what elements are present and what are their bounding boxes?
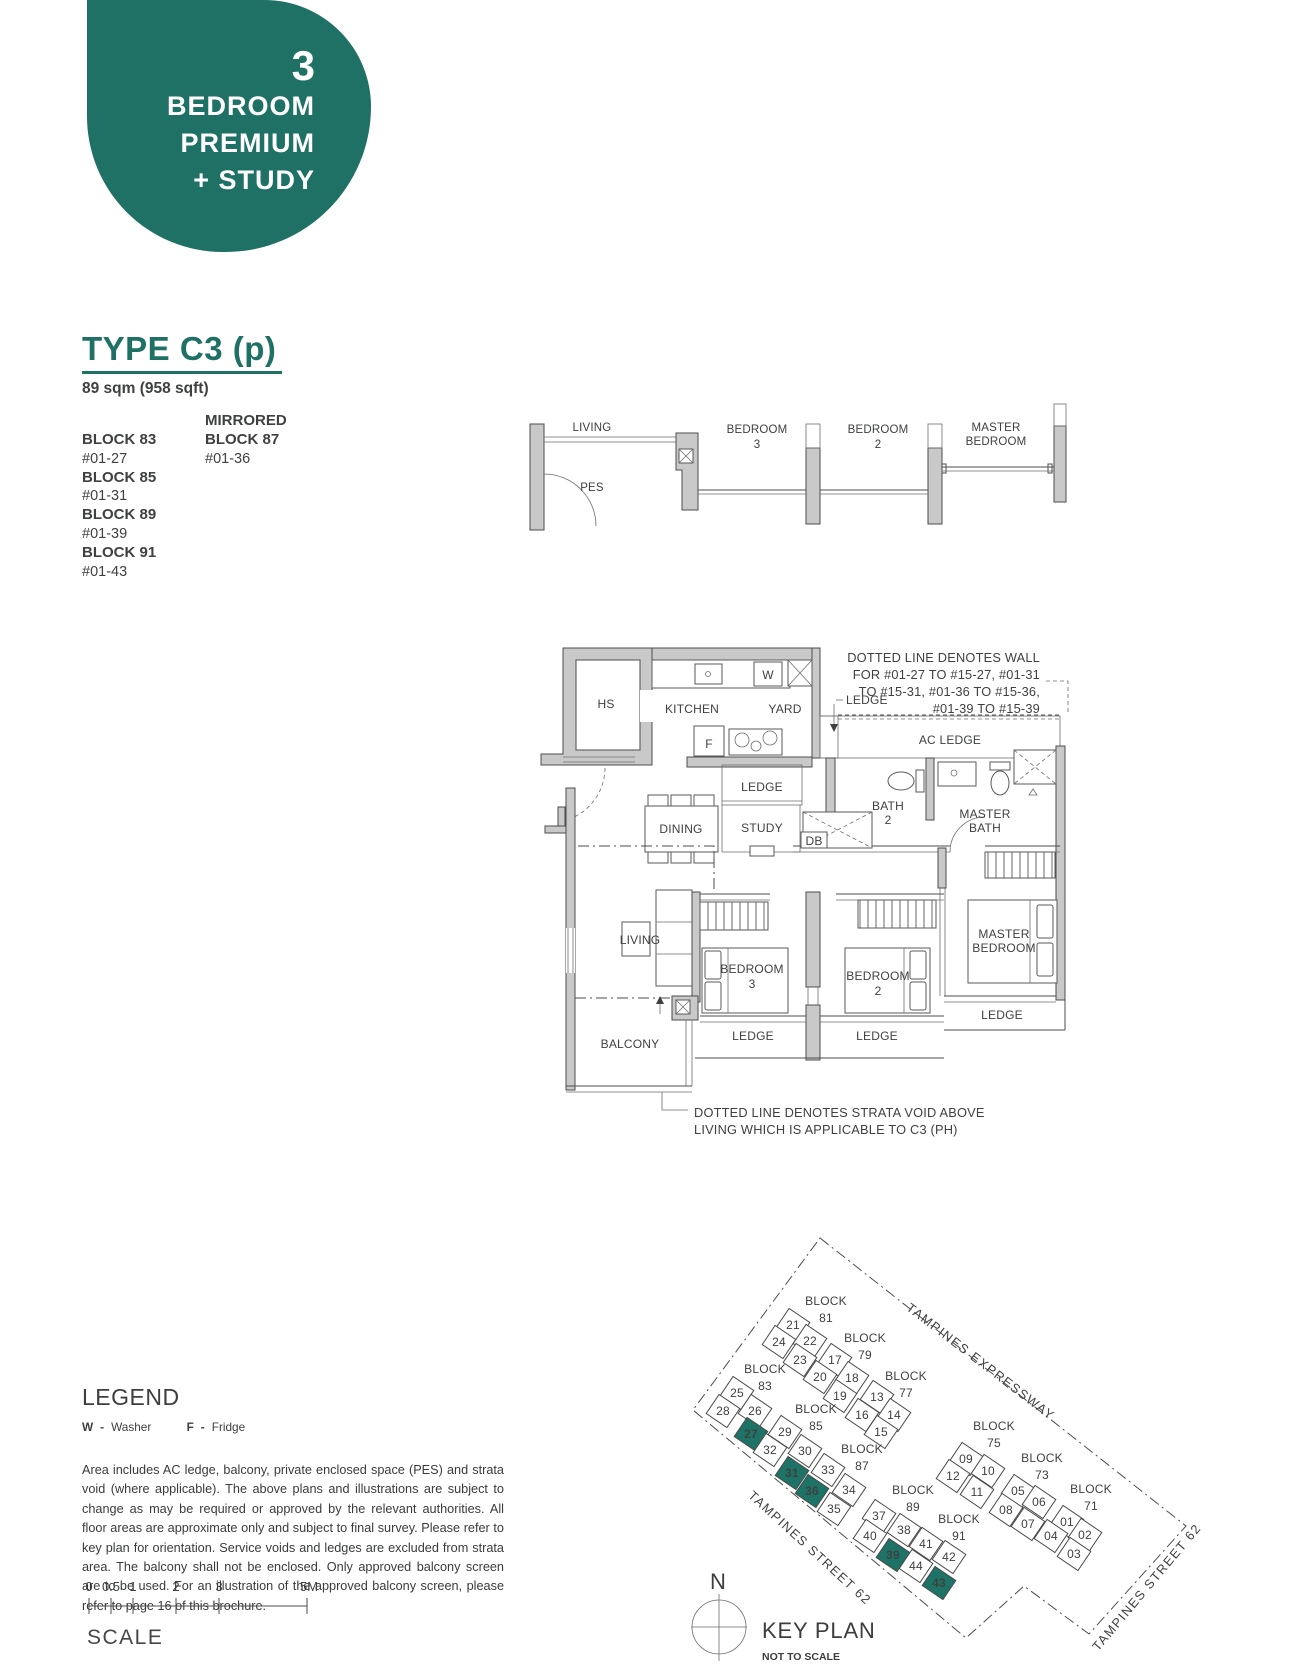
keyplan-unit-number: 24 <box>772 1335 786 1349</box>
scale-tick: 2 <box>172 1579 179 1594</box>
keyplan-unit-number: 40 <box>863 1529 877 1543</box>
keyplan-block-number: 85 <box>809 1419 823 1433</box>
keyplan-unit-number: 02 <box>1078 1528 1092 1542</box>
room-label-master-bath: MASTER <box>959 807 1010 821</box>
room-label-master-bedroom: MASTER <box>978 927 1029 941</box>
keyplan-block-label: BLOCK <box>892 1483 934 1497</box>
keyplan-unit-number: 11 <box>971 1485 984 1499</box>
keyplan-block-number: 79 <box>858 1348 872 1362</box>
keyplan-block-number: 71 <box>1084 1499 1098 1513</box>
wall-note-line: FOR #01-27 TO #15-27, #01-31 <box>853 667 1040 682</box>
keyplan-block-label: BLOCK <box>844 1331 886 1345</box>
keyplan-block-number: 91 <box>952 1529 966 1543</box>
keyplan-block-label: BLOCK <box>1021 1451 1063 1465</box>
room-label-bedroom3-num: 3 <box>749 977 756 991</box>
room-label-kitchen: KITCHEN <box>665 702 719 716</box>
room-label-pes: PES <box>580 482 604 494</box>
keyplan-unit-number: 06 <box>1032 1495 1046 1509</box>
room-label-living-upper: LIVING <box>573 422 612 434</box>
room-label-master-upper: MASTER <box>971 422 1020 434</box>
brochure-page: 3 BEDROOM PREMIUM + STUDY TYPE C3 (p) 89… <box>0 0 1305 1670</box>
room-label-bedroom3-upper: BEDROOM <box>727 424 788 436</box>
street-label-st62-left: TAMPINES STREET 62 <box>746 1488 875 1608</box>
keyplan-unit-number: 32 <box>763 1443 777 1457</box>
scale-tick: 3 <box>215 1579 222 1594</box>
keyplan-block-number: 81 <box>819 1311 833 1325</box>
room-label-bedroom2: BEDROOM <box>846 969 909 983</box>
room-label-ledge-master: LEDGE <box>981 1008 1023 1022</box>
keyplan-unit-number: 27 <box>744 1427 758 1441</box>
room-label-bath2-num: 2 <box>885 813 892 827</box>
upper-partial-plan: LIVING PES BEDROOM 3 BEDROOM 2 MASTER BE… <box>530 404 1066 530</box>
room-label-ledge-b3: LEDGE <box>732 1029 774 1043</box>
keyplan-unit-number: 37 <box>872 1509 886 1523</box>
keyplan-unit-number: 35 <box>827 1502 841 1516</box>
keyplan-block-label: BLOCK <box>795 1402 837 1416</box>
key-plan: TAMPINES EXPRESSWAY TAMPINES STREET 62 T… <box>691 1238 1204 1663</box>
keyplan-unit-number: 10 <box>981 1464 995 1478</box>
keyplan-unit-number: 36 <box>805 1484 819 1498</box>
room-label-hs: HS <box>597 697 614 711</box>
keyplan-unit-number: 05 <box>1011 1484 1025 1498</box>
room-label-balcony: BALCONY <box>601 1037 660 1051</box>
room-label-master-bedroom-2: BEDROOM <box>972 941 1035 955</box>
keyplan-unit-number: 33 <box>821 1463 835 1477</box>
keyplan-units: BLOCK8121242223BLOCK7917201819BLOCK77131… <box>706 1294 1112 1600</box>
keyplan-subtitle: NOT TO SCALE <box>762 1651 840 1663</box>
keyplan-unit-number: 18 <box>845 1371 859 1385</box>
keyplan-block-number: 87 <box>855 1459 869 1473</box>
room-label-bedroom3-upper-num: 3 <box>754 439 761 451</box>
keyplan-unit-number: 29 <box>778 1425 792 1439</box>
keyplan-unit-number: 30 <box>798 1444 812 1458</box>
scale-label: SCALE <box>87 1626 163 1649</box>
keyplan-unit-number: 17 <box>828 1353 842 1367</box>
keyplan-unit-number: 04 <box>1044 1529 1058 1543</box>
room-label-study: STUDY <box>741 821 783 835</box>
room-label-master-upper-2: BEDROOM <box>966 436 1027 448</box>
keyplan-title: KEY PLAN <box>762 1618 876 1643</box>
keyplan-unit-number: 28 <box>716 1404 730 1418</box>
keyplan-unit-number: 07 <box>1021 1517 1035 1531</box>
fridge-label: F <box>705 737 713 751</box>
wall-note-line: #01-39 TO #15-39 <box>933 701 1040 716</box>
keyplan-unit-number: 09 <box>959 1452 973 1466</box>
keyplan-block-number: 89 <box>906 1500 920 1514</box>
main-floor-plan: HS KITCHEN YARD W F LEDGE LEDGE AC LEDGE… <box>541 648 1068 1137</box>
keyplan-unit-number: 21 <box>786 1318 800 1332</box>
keyplan-block-label: BLOCK <box>841 1442 883 1456</box>
scale-bar: 0 0.5 1 2 3 5M SCALE <box>85 1579 318 1649</box>
room-label-bedroom3: BEDROOM <box>720 962 783 976</box>
keyplan-unit-number: 38 <box>897 1523 911 1537</box>
scale-tick: 1 <box>129 1579 136 1594</box>
room-label-dining: DINING <box>659 822 702 836</box>
strata-note-line: LIVING WHICH IS APPLICABLE TO C3 (PH) <box>694 1122 958 1137</box>
keyplan-unit-number: 12 <box>946 1469 960 1483</box>
room-label-bedroom2-num: 2 <box>875 984 882 998</box>
keyplan-unit-number: 26 <box>748 1404 762 1418</box>
strata-note: DOTTED LINE DENOTES STRATA VOID ABOVE LI… <box>694 1105 985 1137</box>
keyplan-unit-number: 42 <box>942 1550 956 1564</box>
keyplan-unit-number: 03 <box>1067 1547 1081 1561</box>
street-label-expressway: TAMPINES EXPRESSWAY <box>904 1300 1058 1423</box>
keyplan-unit-number: 08 <box>999 1503 1013 1517</box>
street-label-st62-right: TAMPINES STREET 62 <box>1089 1521 1204 1654</box>
room-label-living: LIVING <box>620 933 661 947</box>
north-compass-icon: N <box>691 1569 747 1661</box>
keyplan-unit-number: 19 <box>833 1389 847 1403</box>
keyplan-unit-number: 23 <box>793 1353 807 1367</box>
keyplan-unit-number: 44 <box>909 1559 923 1573</box>
scale-tick: 0.5 <box>102 1579 120 1594</box>
keyplan-unit-number: 25 <box>730 1386 744 1400</box>
keyplan-block-number: 83 <box>758 1379 772 1393</box>
room-label-yard: YARD <box>768 702 801 716</box>
keyplan-unit-number: 15 <box>874 1425 888 1439</box>
room-label-ac-ledge: AC LEDGE <box>919 733 981 747</box>
keyplan-unit-number: 14 <box>887 1408 901 1422</box>
keyplan-unit-number: 22 <box>803 1334 817 1348</box>
keyplan-block-label: BLOCK <box>938 1512 980 1526</box>
keyplan-block-label: BLOCK <box>1070 1482 1112 1496</box>
scale-tick: 0 <box>85 1579 92 1594</box>
washer-label: W <box>762 668 774 682</box>
keyplan-unit-number: 43 <box>932 1576 946 1590</box>
keyplan-unit-number: 16 <box>855 1408 869 1422</box>
bed-bedroom3 <box>702 948 788 1013</box>
keyplan-block-label: BLOCK <box>885 1369 927 1383</box>
wall-note-line: TO #15-31, #01-36 TO #15-36, <box>859 684 1040 699</box>
north-label: N <box>710 1569 727 1594</box>
room-label-bath2: BATH <box>872 799 904 813</box>
keyplan-block-label: BLOCK <box>805 1294 847 1308</box>
room-label-master-bath-2: BATH <box>969 821 1001 835</box>
keyplan-unit-number: 01 <box>1060 1515 1074 1529</box>
keyplan-block-number: 73 <box>1035 1468 1049 1482</box>
keyplan-block-number: 77 <box>899 1386 913 1400</box>
keyplan-unit-number: 41 <box>919 1537 933 1551</box>
scale-tick: 5M <box>300 1579 318 1594</box>
keyplan-unit-number: 31 <box>785 1466 799 1480</box>
room-label-ledge-b2: LEDGE <box>856 1029 898 1043</box>
wall-note-line: DOTTED LINE DENOTES WALL <box>847 650 1040 665</box>
keyplan-unit-number: 13 <box>870 1390 884 1404</box>
keyplan-block-label: BLOCK <box>973 1419 1015 1433</box>
db-label: DB <box>805 834 822 848</box>
strata-note-line: DOTTED LINE DENOTES STRATA VOID ABOVE <box>694 1105 985 1120</box>
room-label-ledge-kitchen: LEDGE <box>741 780 783 794</box>
room-label-bedroom2-upper: BEDROOM <box>848 424 909 436</box>
keyplan-unit-number: 34 <box>842 1483 856 1497</box>
keyplan-block-label: BLOCK <box>744 1362 786 1376</box>
keyplan-block-number: 75 <box>987 1436 1001 1450</box>
keyplan-unit-number: 39 <box>886 1548 900 1562</box>
floorplan-drawing: LIVING PES BEDROOM 3 BEDROOM 2 MASTER BE… <box>0 0 1305 1670</box>
room-label-bedroom2-upper-num: 2 <box>875 439 882 451</box>
keyplan-unit-number: 20 <box>813 1370 827 1384</box>
